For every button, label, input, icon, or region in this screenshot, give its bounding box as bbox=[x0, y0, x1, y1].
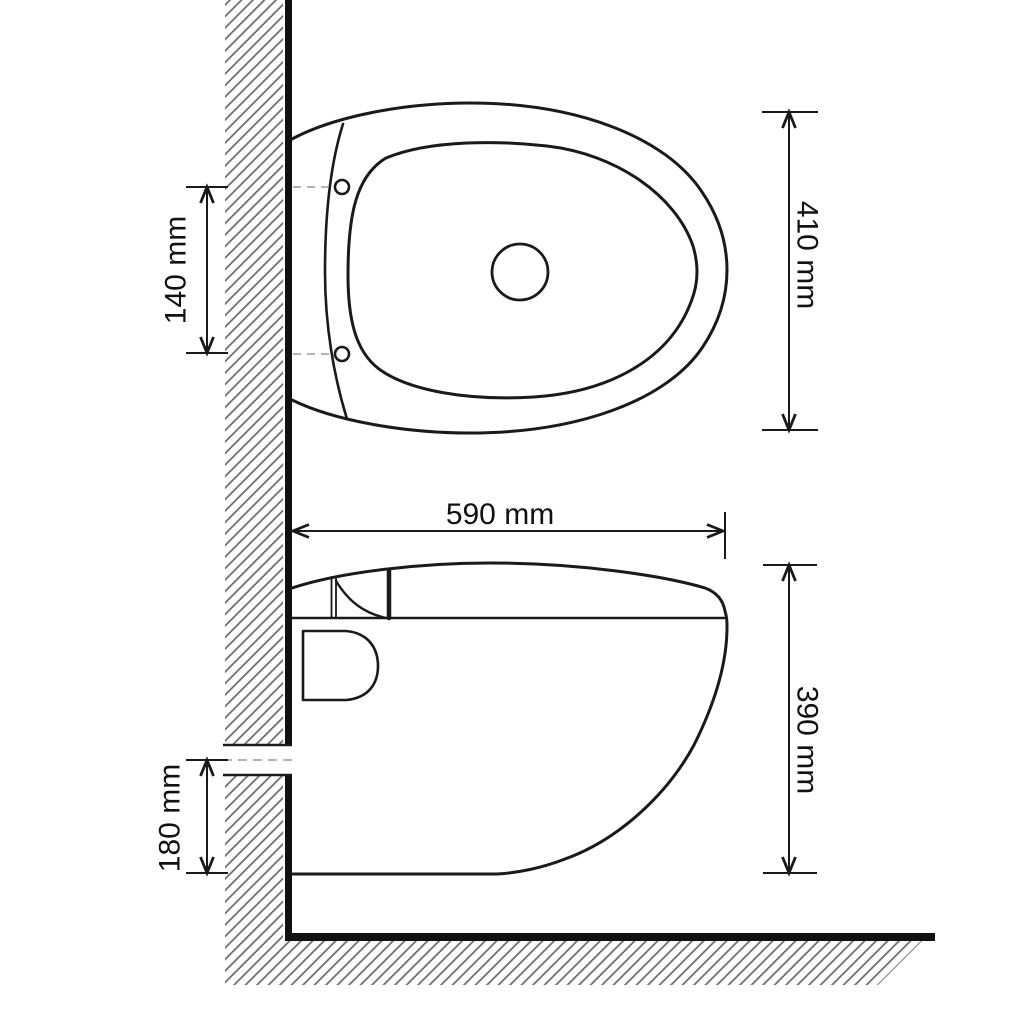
label-hole-spacing: 140 mm bbox=[160, 216, 193, 324]
side-view-access-opening bbox=[303, 631, 378, 700]
top-view-mounting-hole-upper bbox=[335, 180, 349, 194]
label-seat-width: 410 mm bbox=[791, 201, 824, 309]
toilet-top-view bbox=[292, 103, 727, 433]
wall-face-line bbox=[285, 0, 292, 941]
technical-drawing-page: 140 mm 410 mm 590 mm 390 mm 180 mm bbox=[0, 0, 1024, 1024]
label-outlet-height: 180 mm bbox=[154, 764, 187, 872]
wall-face-upper-segment bbox=[285, 0, 292, 745]
wall-face-lower-segment bbox=[285, 775, 292, 941]
label-body-height: 390 mm bbox=[791, 686, 824, 794]
label-depth: 590 mm bbox=[446, 498, 554, 531]
technical-drawing-canvas: 140 mm 410 mm 590 mm 390 mm 180 mm bbox=[0, 0, 1024, 1024]
top-view-outer-outline bbox=[292, 103, 727, 433]
top-view-mounting-hole-lower bbox=[335, 347, 349, 361]
floor-line bbox=[285, 933, 935, 941]
drain-pipe bbox=[223, 744, 292, 776]
